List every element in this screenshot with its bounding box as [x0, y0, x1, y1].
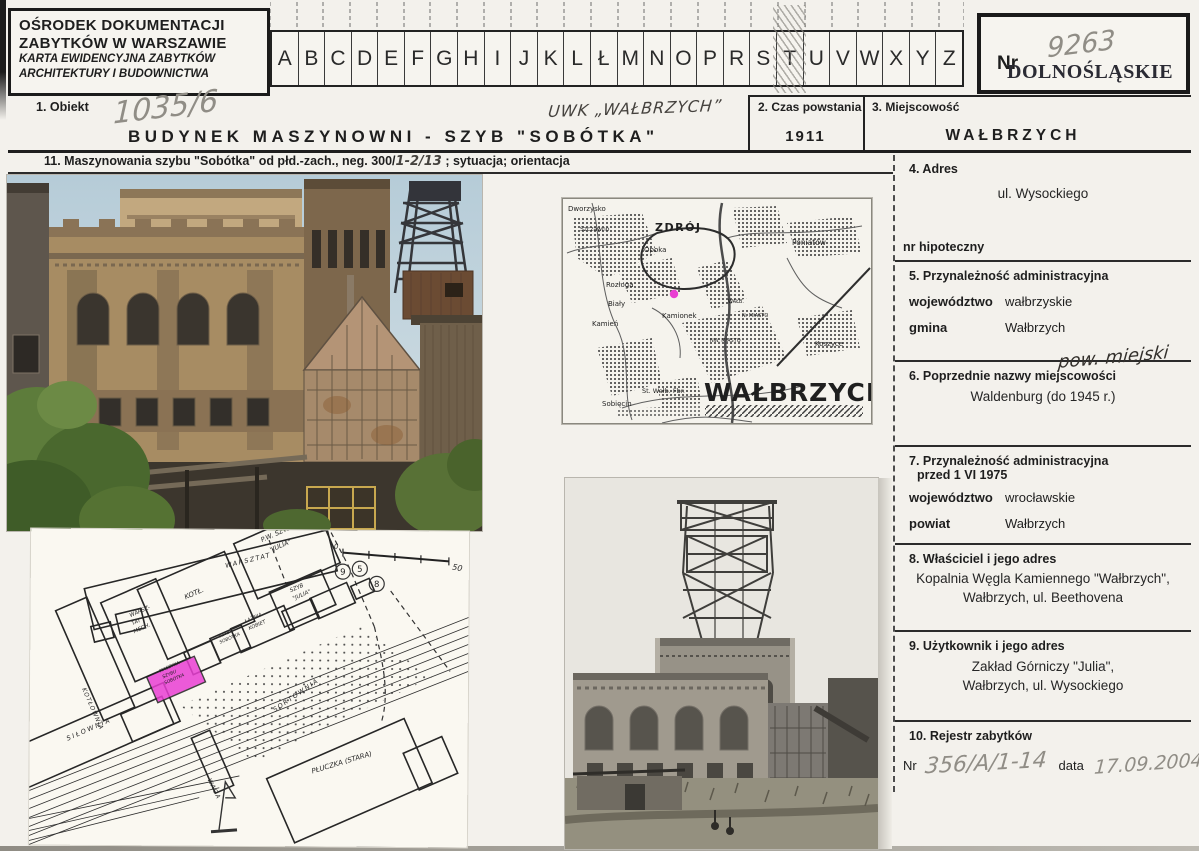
index-letter: Z: [936, 32, 962, 85]
map-hatch-bar: [705, 405, 863, 417]
caption-text: 11. Maszynowania szybu "Sobótka" od płd.…: [44, 154, 396, 168]
institution-line2: ZABYTKÓW W WARSZAWIE: [19, 35, 263, 53]
index-letter: F: [405, 32, 432, 85]
przynaleznosc-label: 5. Przynależność administracyjna: [895, 262, 1191, 283]
institution-header: OŚRODEK DOKUMENTACJI ZABYTKÓW W WARSZAWI…: [8, 8, 270, 96]
institution-line1: OŚRODEK DOKUMENTACJI: [19, 17, 263, 35]
map-label: Szczawno: [580, 226, 610, 233]
map-label: N. MIASTO: [742, 313, 768, 319]
rejestr-nr-label: Nr: [903, 758, 917, 773]
uzytkownik-label: 9. Użytkownik i jego adres: [895, 632, 1191, 653]
index-letter: Y: [910, 32, 937, 85]
index-letter: U: [804, 32, 831, 85]
headframe-bw-photo: [565, 478, 878, 849]
field-przynaleznosc: 5. Przynależność administracyjna wojewód…: [895, 262, 1191, 362]
card-type-line1: KARTA EWIDENCYJNA ZABYTKÓW: [19, 53, 263, 67]
uzytkownik-line1: Zakład Górniczy "Julia",: [895, 659, 1191, 674]
miejscowosc-value: WAŁBRZYCH: [863, 127, 1163, 145]
miejscowosc-label: 3. Miejscowość: [872, 100, 959, 114]
caption-text-suffix: ; sytuacja; orientacja: [445, 154, 569, 168]
field-adres: 4. Adres ul. Wysockiego nr hipoteczny: [895, 155, 1191, 262]
map-label: WAŁB.: [728, 299, 744, 305]
rejestr-data-label: data: [1059, 758, 1084, 773]
wlasciciel-line1: Kopalnia Węgla Kamiennego "Wałbrzych",: [895, 571, 1191, 586]
map-label: ZDRÓJ: [655, 221, 702, 234]
field-wlasciciel: 8. Właściciel i jego adres Kopalnia Węgl…: [895, 545, 1191, 632]
scan-left-edge: [0, 0, 6, 120]
index-letter: R: [724, 32, 751, 85]
field-poprzednie-nazwy: 6. Poprzednie nazwy miejscowości Waldenb…: [895, 362, 1191, 447]
caption-neg-handwritten: 1-2/13: [396, 154, 442, 169]
main-divider: [8, 150, 1191, 153]
powiat-value: Wałbrzych: [1005, 516, 1065, 531]
index-letter: L: [564, 32, 591, 85]
index-letter: K: [538, 32, 565, 85]
powiat-label: powiat: [909, 516, 1005, 531]
plan-badge: 9: [340, 568, 345, 578]
headframe-cabin: [403, 271, 473, 319]
wlasciciel-line2: Wałbrzych, ul. Beethovena: [895, 590, 1191, 605]
wojewodztwo-label: województwo: [909, 294, 1005, 309]
index-letter: G: [431, 32, 458, 85]
index-letter: D: [352, 32, 379, 85]
index-letter: I: [485, 32, 512, 85]
heritage-record-card-scan: OŚRODEK DOKUMENTACJI ZABYTKÓW W WARSZAWI…: [0, 0, 1199, 851]
wlasciciel-label: 8. Właściciel i jego adres: [895, 545, 1191, 566]
index-letter: A: [272, 32, 299, 85]
index-strip-ticks: [270, 2, 964, 30]
pencil-hatch-letter-t: [773, 5, 806, 93]
index-letter: O: [671, 32, 698, 85]
czas-value: 1911: [748, 128, 863, 145]
index-letter: W: [857, 32, 884, 85]
index-letter: J: [511, 32, 538, 85]
location-map: Dworzysko Szczawno ZDRÓJ Opoka Poniatów …: [562, 198, 872, 424]
map-label: Sobięcin: [602, 400, 632, 408]
index-letter: B: [299, 32, 326, 85]
field-rejestr: 10. Rejestr zabytków Nr 356/A/1-14 data …: [895, 722, 1191, 792]
voivodeship-stamp: DOLNOŚLĄSKIE: [1007, 61, 1173, 84]
index-letter: E: [378, 32, 405, 85]
poprzednie-value: Waldenburg (do 1945 r.): [895, 389, 1191, 404]
wojewodztwo-1975-label: województwo: [909, 490, 1005, 505]
photo-shadow-strip: [878, 478, 892, 849]
site-location-marker: [670, 290, 678, 298]
index-letter: N: [644, 32, 671, 85]
gmina-value: Wałbrzych: [1005, 320, 1065, 335]
map-label: Rozłoga: [606, 281, 634, 289]
map-label: Dworzysko: [568, 205, 606, 213]
map-label: Kamionek: [662, 312, 698, 320]
wojewodztwo-1975-value: wrocławskie: [1005, 490, 1075, 505]
photo-caption-row: 11. Maszynowania szybu "Sobótka" od płd.…: [8, 154, 893, 174]
index-letter: H: [458, 32, 485, 85]
przyn-1975-label: 7. Przynależność administracyjna: [895, 447, 1191, 468]
przyn-1975-label2: przed 1 VI 1975: [895, 468, 1191, 482]
index-letter: X: [883, 32, 910, 85]
object-title: BUDYNEK MASZYNOWNI - SZYB "SOBÓTKA": [128, 127, 659, 147]
map-label: Koszyce: [815, 340, 843, 348]
poprzednie-label: 6. Poprzednie nazwy miejscowości: [895, 362, 1191, 383]
map-label: Opoka: [644, 246, 666, 254]
adres-value: ul. Wysockiego: [895, 186, 1191, 201]
map-label: NW. MIASTO: [710, 338, 741, 344]
map-city-name: WAŁBRZYCH: [704, 378, 872, 407]
nr-hipoteczny-label: nr hipoteczny: [903, 240, 984, 254]
plan-badge: 5: [357, 565, 362, 575]
map-label: St. Wałb. Fbr.: [642, 387, 685, 395]
plan-badge: 8: [374, 580, 379, 590]
bw-main-hall: [573, 673, 768, 793]
machine-hall-color-photo: [7, 175, 482, 531]
site-plan: 9 5 8 WARSZTAT P.W. SZYB "JULIA" KOTŁOWN…: [29, 528, 469, 847]
card-type-line2: ARCHITEKTURY I BUDOWNICTWA: [19, 68, 263, 82]
map-label: Kamień: [592, 320, 618, 328]
uzytkownik-line2: Wałbrzych, ul. Wysockiego: [895, 678, 1191, 693]
bw-foreground: [565, 770, 878, 849]
plan-scale-end: 50: [451, 563, 463, 574]
uwk-annotation-handwritten: UWK „WAŁBRZYCH”: [547, 96, 723, 121]
alphabet-index-strip: A B C D E F G H I J K L Ł M N O P R S T …: [270, 30, 964, 87]
adres-label: 4. Adres: [895, 155, 1191, 176]
field-uzytkownik: 9. Użytkownik i jego adres Zakład Górnic…: [895, 632, 1191, 722]
map-label: Poniatów: [792, 238, 826, 247]
index-letter: M: [618, 32, 645, 85]
rejestr-data-handwritten: 17.09.2004: [1093, 749, 1199, 779]
gmina-label: gmina: [909, 320, 1005, 335]
index-letter: C: [325, 32, 352, 85]
field-przynaleznosc-1975: 7. Przynależność administracyjna przed 1…: [895, 447, 1191, 545]
nr-number-handwritten: 9263: [1047, 25, 1116, 65]
object-field-label: 1. Obiekt: [36, 100, 89, 114]
rejestr-nr-handwritten: 356/A/1-14: [924, 748, 1048, 780]
index-letter: P: [697, 32, 724, 85]
rejestr-label: 10. Rejestr zabytków: [895, 722, 1191, 743]
index-letter: V: [830, 32, 857, 85]
index-letter: Ł: [591, 32, 618, 85]
wojewodztwo-value: wałbrzyskie: [1005, 294, 1072, 309]
plan-scale-start: 0: [334, 543, 339, 551]
nr-box: Nr 9263 DOLNOŚLĄSKIE: [977, 13, 1190, 94]
map-label: Biały: [608, 300, 625, 308]
right-field-column: 4. Adres ul. Wysockiego nr hipoteczny 5.…: [893, 155, 1191, 792]
row-divider: [748, 95, 1191, 97]
czas-label: 2. Czas powstania: [758, 100, 861, 114]
